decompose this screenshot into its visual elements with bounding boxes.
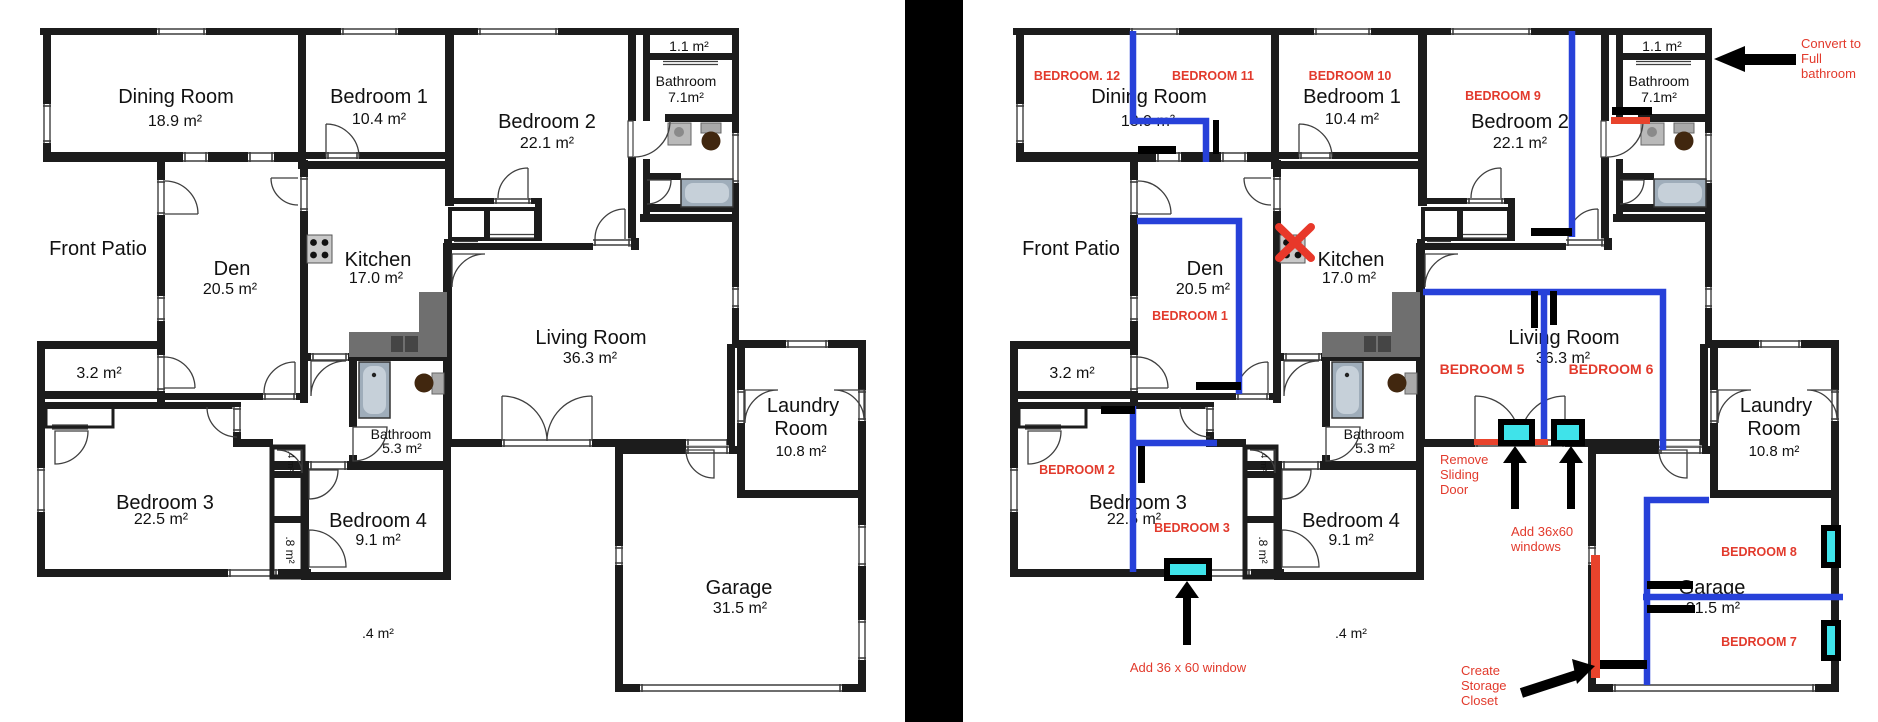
svg-text:BEDROOM 6: BEDROOM 6 bbox=[1569, 361, 1654, 377]
svg-text:BEDROOM 3: BEDROOM 3 bbox=[1154, 521, 1230, 535]
svg-text:BEDROOM 8: BEDROOM 8 bbox=[1721, 545, 1797, 559]
svg-text:BEDROOM 11: BEDROOM 11 bbox=[1172, 69, 1254, 83]
svg-text:BEDROOM 7: BEDROOM 7 bbox=[1721, 635, 1797, 649]
svg-text:BEDROOM 5: BEDROOM 5 bbox=[1440, 361, 1525, 377]
svg-text:BEDROOM 2: BEDROOM 2 bbox=[1039, 463, 1115, 477]
svg-text:BEDROOM 9: BEDROOM 9 bbox=[1465, 89, 1541, 103]
svg-text:BEDROOM 10: BEDROOM 10 bbox=[1309, 69, 1392, 83]
svg-text:BEDROOM 1: BEDROOM 1 bbox=[1152, 309, 1228, 323]
svg-text:BEDROOM. 12: BEDROOM. 12 bbox=[1034, 69, 1120, 83]
svg-text:Add 36 x 60 window: Add 36 x 60 window bbox=[1130, 660, 1247, 675]
